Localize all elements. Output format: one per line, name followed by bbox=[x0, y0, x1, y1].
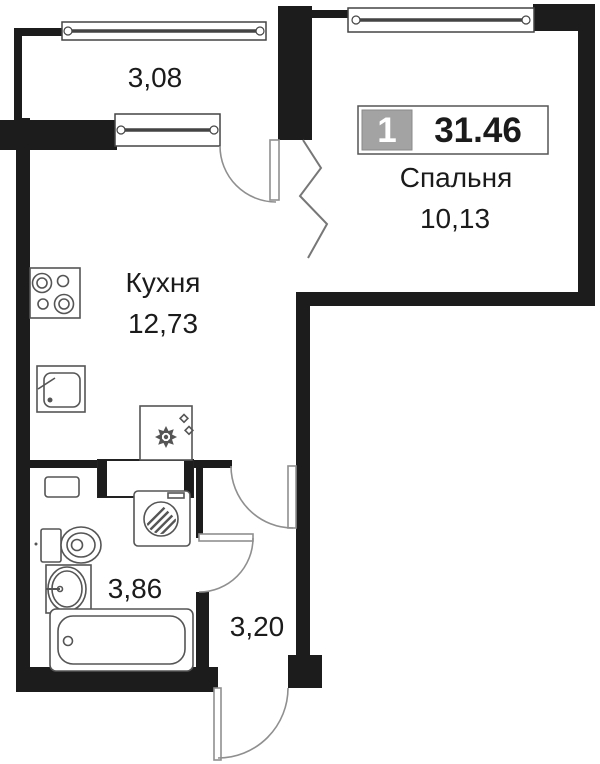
hallway-door bbox=[231, 466, 296, 528]
kitchen-sink-icon bbox=[37, 366, 85, 412]
floor-plan: 1 31.46 3,08 Кухня 12,73 Спальня 10,13 3… bbox=[0, 0, 600, 764]
kitchen-area-label: 12,73 bbox=[128, 308, 198, 339]
bathroom-sink-icon bbox=[46, 565, 91, 613]
bedroom-name-label: Спальня bbox=[400, 162, 513, 193]
kitchen-name-label: Кухня bbox=[126, 267, 201, 298]
hallway-area-label: 3,20 bbox=[230, 611, 285, 642]
floor-plan-drawing: 1 31.46 3,08 Кухня 12,73 Спальня 10,13 3… bbox=[0, 0, 600, 764]
kitchen-balcony-window bbox=[115, 114, 220, 146]
toilet-icon bbox=[35, 527, 102, 563]
wall-balcony-top bbox=[14, 28, 64, 36]
wall-bedroom-right bbox=[578, 4, 595, 306]
balcony-window bbox=[62, 22, 266, 40]
balcony-area-label: 3,08 bbox=[128, 62, 183, 93]
unit-rooms-count: 1 bbox=[377, 111, 396, 150]
wall-balcony-kitchen-left bbox=[0, 120, 117, 150]
bathroom-area-label: 3,86 bbox=[108, 573, 163, 604]
shelf-icon bbox=[45, 477, 79, 497]
snowflake-icon bbox=[155, 426, 177, 448]
bathtub-icon bbox=[50, 609, 193, 671]
bedroom-area-label: 10,13 bbox=[420, 203, 490, 234]
wall-bedroom-top-left bbox=[310, 10, 350, 18]
wall-entry-right-block bbox=[288, 655, 322, 688]
partition-zigzag bbox=[300, 140, 327, 258]
unit-badge: 1 31.46 bbox=[358, 106, 548, 154]
entrance-door bbox=[214, 688, 288, 760]
unit-total-area: 31.46 bbox=[434, 111, 522, 150]
stove-icon bbox=[30, 268, 80, 318]
wall-bathroom-right-lower bbox=[196, 592, 209, 669]
wall-left-outer bbox=[16, 118, 30, 692]
wall-bedroom-bottom bbox=[300, 292, 595, 306]
bathroom-door bbox=[199, 534, 253, 592]
wall-hallway-right bbox=[296, 292, 310, 658]
washing-machine-icon bbox=[134, 491, 190, 546]
wall-bathroom-right-upper bbox=[196, 460, 203, 538]
fridge-icon bbox=[140, 406, 193, 460]
balcony-door bbox=[220, 140, 279, 202]
wall-block-balcony-bedroom bbox=[278, 6, 312, 140]
bedroom-window bbox=[348, 8, 534, 32]
wall-balcony-left bbox=[14, 28, 22, 124]
